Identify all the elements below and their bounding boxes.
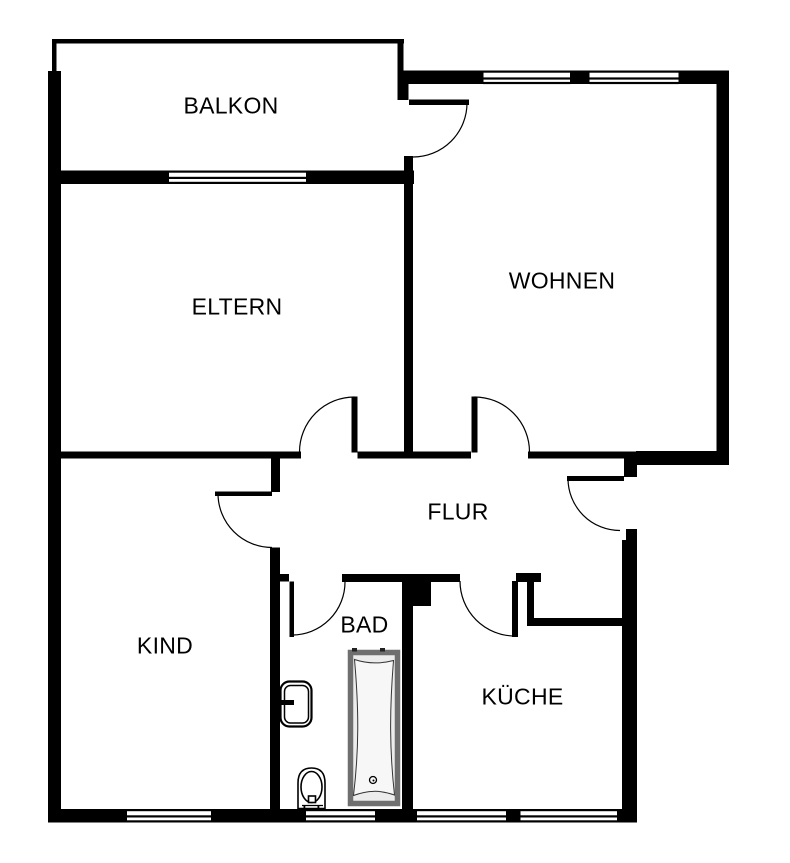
svg-text:ELTERN: ELTERN [192,294,283,320]
svg-text:FLUR: FLUR [427,499,488,525]
svg-text:BAD: BAD [340,612,388,638]
svg-text:KÜCHE: KÜCHE [481,684,563,710]
svg-text:KIND: KIND [137,633,193,659]
svg-text:WOHNEN: WOHNEN [509,268,616,294]
svg-text:BALKON: BALKON [183,93,278,119]
